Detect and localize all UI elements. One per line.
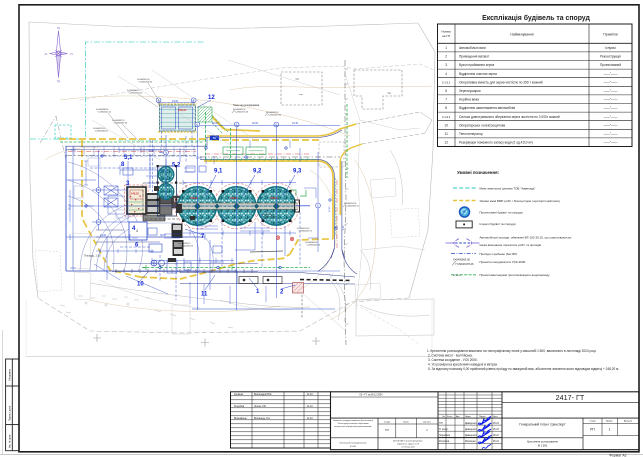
svg-text:Стадія: Стадія: [589, 420, 597, 423]
svg-text:——''——: ——''——: [604, 132, 619, 136]
svg-text:Y=29020052.15: Y=29020052.15: [98, 112, 111, 114]
svg-text:Кільк.: Кільк.: [447, 415, 453, 418]
svg-text:ГТб: ГТб: [385, 430, 390, 432]
svg-text:3: 3: [445, 63, 447, 67]
svg-text:06.24: 06.24: [493, 423, 499, 425]
svg-text:Операторська і електрощитова: Операторська і електрощитова: [459, 123, 505, 127]
svg-text:на ГП: на ГП: [442, 34, 450, 38]
svg-text:5. За відносну позначку 0,00 п: 5. За відносну позначку 0,00 прийнятий р…: [428, 367, 619, 371]
svg-text:Х=5400965.00: Х=5400965.00: [453, 258, 471, 262]
svg-text:Силоси довготривалого зберіган: Силоси довготривалого зберігання зерна ч…: [459, 115, 560, 119]
svg-text:Існуючі: Існуючі: [605, 46, 616, 50]
svg-text:——''——: ——''——: [604, 123, 619, 127]
svg-text:Реконструкція: Реконструкція: [600, 55, 621, 59]
svg-text:——''——: ——''——: [604, 89, 619, 93]
svg-text:Найменування: Найменування: [510, 33, 533, 37]
svg-text:Замовлення господарче замовлен: Замовлення господарче замовлення (Без по…: [333, 420, 374, 422]
svg-text:4. Усі розміри на кресленнях н: 4. Усі розміри на кресленнях наведені в …: [428, 363, 498, 367]
svg-text:1. Креслення розташування вико: 1. Креслення розташування виконано на то…: [427, 349, 597, 353]
svg-text:Відділення очистки зерна: Відділення очистки зерна: [459, 72, 497, 76]
svg-text:Y=29020205.30: Y=29020205.30: [264, 217, 277, 219]
svg-text:Проектні координати в УСК-2000: Проектні координати в УСК-2000: [480, 260, 526, 264]
svg-text:Проїзди з щебеню (без БР): Проїзди з щебеню (без БР): [480, 252, 518, 256]
svg-text:Вузол приймання зерна: Вузол приймання зерна: [459, 63, 494, 67]
svg-text:межа виконання проектних робіт: межа виконання проектних робіт та проїзд…: [480, 243, 542, 247]
svg-text:Перевірив: Перевірив: [439, 434, 451, 437]
svg-text:Експлікація будівель та споруд: Експлікація будівель та споруд: [482, 14, 590, 22]
svg-text:УЗ: УЗ: [295, 77, 299, 81]
svg-text:Проектований: Проектований: [600, 63, 621, 67]
svg-text:15,00: 15,00: [172, 100, 179, 103]
svg-text:Змінювальний топографічний пла: Змінювальний топографічний план: [339, 442, 367, 445]
svg-text:Давиденко: Давиденко: [465, 423, 477, 425]
svg-text:Y=29020160.20: Y=29020160.20: [180, 246, 193, 248]
svg-text:ДП ТОВ. ВБК "Система" Департам: ДП ТОВ. ВБК "Система" Департамент: [393, 441, 423, 443]
svg-text:9,2: 9,2: [253, 169, 262, 175]
svg-text:Пд: Пд: [57, 79, 61, 83]
svg-text:13,80: 13,80: [196, 157, 203, 160]
svg-text:7: 7: [445, 98, 447, 102]
svg-text:Оперативна ємність для зерна ч: Оперативна ємність для зерна чистістю по…: [459, 80, 543, 84]
svg-text:Пн: Пн: [57, 26, 61, 30]
svg-text:в2 в2 в2: в2 в2 в2: [453, 275, 462, 277]
svg-text:2417- ГТ: 2417- ГТ: [556, 393, 585, 402]
svg-text:248,37: 248,37: [178, 108, 187, 112]
svg-text:10: 10: [137, 282, 144, 288]
svg-text:Примітки: Примітки: [603, 33, 617, 37]
svg-text:8: 8: [445, 106, 447, 110]
svg-text:Розробив: Розробив: [234, 406, 245, 408]
svg-text:Y=29020063.30: Y=29020063.30: [114, 123, 127, 125]
svg-text:№док.: №док.: [465, 415, 472, 418]
svg-text:4: 4: [445, 72, 447, 76]
svg-text:Y=29020178.46: Y=29020178.46: [455, 262, 474, 266]
svg-text:перевезення, видання та ГК: перевезення, видання та ГК: [397, 444, 419, 446]
svg-text:12: 12: [208, 95, 215, 101]
svg-text:——''——: ——''——: [604, 98, 619, 102]
svg-text:В2: В2: [213, 136, 217, 140]
svg-text:18,00: 18,00: [212, 122, 219, 125]
svg-text:РП: РП: [590, 428, 595, 432]
svg-text:——''——: ——''——: [604, 80, 619, 84]
svg-text:Газон над резервуарами: Газон над резервуарами: [233, 105, 260, 107]
svg-text:Приміщення вагової: Приміщення вагової: [459, 55, 489, 59]
svg-text:Автомобільні проїзди, обмежені: Автомобільні проїзди, обмежені БР 100.30…: [480, 236, 572, 240]
svg-text:11: 11: [201, 292, 208, 298]
svg-text:Y=29020176.46: Y=29020176.46: [235, 112, 248, 114]
svg-text:Існуючі будівлі та споруди: Існуючі будівлі та споруди: [480, 222, 516, 226]
svg-text:06.24: 06.24: [493, 441, 499, 443]
svg-text:Теплогенератор: Теплогенератор: [459, 132, 483, 136]
svg-text:М 1:500: М 1:500: [538, 443, 548, 447]
svg-text:15,30: 15,30: [292, 122, 299, 125]
svg-text:248,20: 248,20: [131, 192, 139, 196]
svg-text:——''——: ——''——: [604, 106, 619, 110]
svg-text:Частина: Частина: [423, 421, 432, 423]
svg-text:Межі земельної ділянки ТОВ "Ав: Межі земельної ділянки ТОВ "Авангард": [480, 186, 536, 190]
svg-text:Жосан О.В.: Жосан О.В.: [254, 406, 267, 408]
svg-text:16,30: 16,30: [132, 238, 138, 240]
svg-text:Керівник: Керівник: [234, 393, 244, 396]
svg-text:Зм.: Зм.: [442, 416, 446, 418]
svg-text:3. Система координат - УСК 200: 3. Система координат - УСК 2000.: [428, 358, 478, 362]
svg-text:2: 2: [445, 55, 447, 59]
svg-text:12,00: 12,00: [329, 206, 331, 212]
svg-text:6: 6: [445, 89, 447, 93]
svg-text:Зерносушарка: Зерносушарка: [459, 89, 481, 93]
svg-text:Умовні позначення:: Умовні позначення:: [457, 170, 500, 175]
svg-text:1: 1: [445, 46, 447, 50]
svg-text:Підпис: Підпис: [479, 415, 486, 418]
svg-text:248,20: 248,20: [270, 196, 278, 200]
svg-text:248,20: 248,20: [230, 196, 238, 200]
svg-text:11.24: 11.24: [307, 418, 313, 420]
svg-text:ГІП: ГІП: [439, 423, 443, 425]
svg-text:Підпис і дата: Підпис і дата: [9, 405, 12, 421]
svg-text:9,1: 9,1: [214, 169, 223, 175]
svg-text:Норійна вежа: Норійна вежа: [459, 98, 479, 102]
svg-text:Виноградов В.М.: Виноградов В.М.: [254, 394, 272, 396]
svg-text:Давиденко: Давиденко: [465, 429, 477, 431]
svg-text:Y=29020144.60: Y=29020144.60: [129, 93, 142, 95]
svg-text:Y=29020258.12: Y=29020258.12: [346, 206, 359, 208]
svg-text:24,00: 24,00: [100, 234, 107, 237]
svg-text:——''——: ——''——: [604, 141, 619, 145]
svg-text:Y=29020246.30: Y=29020246.30: [307, 245, 320, 247]
svg-text:5,2: 5,2: [172, 163, 181, 169]
svg-text:9,3: 9,3: [293, 169, 302, 175]
svg-text:1Н: 1Н: [387, 91, 390, 95]
svg-text:Y=29020230.75: Y=29020230.75: [299, 231, 312, 233]
svg-text:Аркушів: Аркушів: [624, 420, 633, 423]
svg-text:02—ГТ зм.06.12.2024: 02—ГТ зм.06.12.2024: [360, 395, 384, 397]
svg-text:Розробив: Розробив: [439, 441, 450, 443]
svg-text:Умовні межі БМР робіт і благоу: Умовні межі БМР робіт і благоустрою тери…: [480, 199, 561, 203]
svg-text:——''——: ——''——: [604, 72, 619, 76]
svg-text:10: 10: [444, 123, 448, 127]
svg-text:Y=29020214.80: Y=29020214.80: [268, 115, 281, 117]
svg-text:Узгоджено: Узгоджено: [9, 368, 12, 381]
svg-text:Проектовані будівлі та споруди: Проектовані будівлі та споруди: [480, 211, 524, 215]
svg-text:Формат А2: Формат А2: [609, 453, 626, 457]
svg-text:4: 4: [136, 229, 138, 233]
svg-text:Креслення розташування: Креслення розташування: [527, 439, 558, 443]
svg-text:5.1-5.2: 5.1-5.2: [442, 80, 451, 84]
svg-text:Стадія: Стадія: [384, 420, 390, 423]
svg-text:——''——: ——''——: [604, 115, 619, 119]
svg-text:Автомобільні ваги: Автомобільні ваги: [459, 46, 486, 50]
svg-text:Арк.: Арк.: [456, 415, 460, 418]
svg-text:Y=29020048.95: Y=29020048.95: [95, 131, 108, 133]
svg-text:11.24: 11.24: [307, 406, 313, 408]
svg-text:Проектовані мережі протипожежн: Проектовані мережі протипожежного водопр…: [480, 273, 551, 277]
svg-text:Відділення завантаження автомо: Відділення завантаження автомобілів: [459, 106, 515, 110]
svg-text:11.24: 11.24: [307, 394, 313, 396]
svg-text:Інв. № ориг.: Інв. № ориг.: [9, 434, 12, 448]
svg-text:Y=29020108.30: Y=29020108.30: [139, 82, 152, 84]
svg-text:12: 12: [444, 141, 448, 145]
svg-text:Давиденко: Давиденко: [465, 435, 477, 437]
svg-text:06.24: 06.24: [493, 429, 499, 431]
svg-text:1: 1: [609, 428, 611, 432]
svg-text:11: 11: [445, 132, 449, 136]
svg-text:Матвієнко: Матвієнко: [465, 440, 476, 443]
svg-text:м. Полтава 2024: м. Полтава 2024: [402, 447, 415, 449]
svg-text:Виктанець О.А.: Виктанець О.А.: [254, 417, 271, 420]
svg-text:Н. контр.: Н. контр.: [439, 429, 449, 431]
svg-text:Виконавець: Виконавець: [234, 418, 247, 420]
svg-text:Генеральний план і транспорт: Генеральний план і транспорт: [519, 423, 566, 427]
svg-text:Резервуари пожежного запасу во: Резервуари пожежного запасу води (2 од.4…: [459, 141, 533, 145]
svg-text:Черга: Черга: [403, 421, 409, 423]
svg-text:М 1:500: М 1:500: [350, 446, 356, 448]
svg-text:Аркуш: Аркуш: [606, 420, 613, 423]
svg-text:36,00: 36,00: [160, 234, 167, 237]
svg-text:06.24: 06.24: [493, 435, 499, 437]
svg-text:9.1-9.3: 9.1-9.3: [442, 115, 451, 119]
svg-text:2. Система висот - Балтійська.: 2. Система висот - Балтійська.: [428, 354, 473, 358]
svg-text:5,1: 5,1: [124, 155, 133, 161]
svg-text:18,00: 18,00: [252, 122, 259, 125]
svg-text:Площад. 1:10: Площад. 1:10: [84, 254, 101, 258]
svg-text:асф.: асф.: [299, 93, 304, 96]
